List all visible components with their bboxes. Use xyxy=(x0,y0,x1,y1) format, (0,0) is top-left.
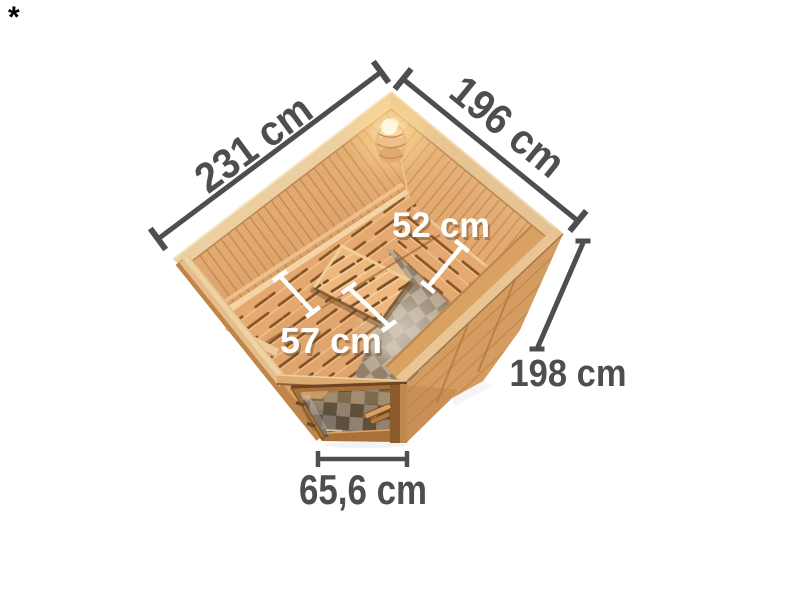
svg-text:57 cm: 57 cm xyxy=(280,320,382,361)
svg-text:52 cm: 52 cm xyxy=(392,206,490,245)
svg-text:*: * xyxy=(8,1,20,34)
svg-text:198 cm: 198 cm xyxy=(510,353,627,395)
svg-text:65,6 cm: 65,6 cm xyxy=(299,466,427,513)
